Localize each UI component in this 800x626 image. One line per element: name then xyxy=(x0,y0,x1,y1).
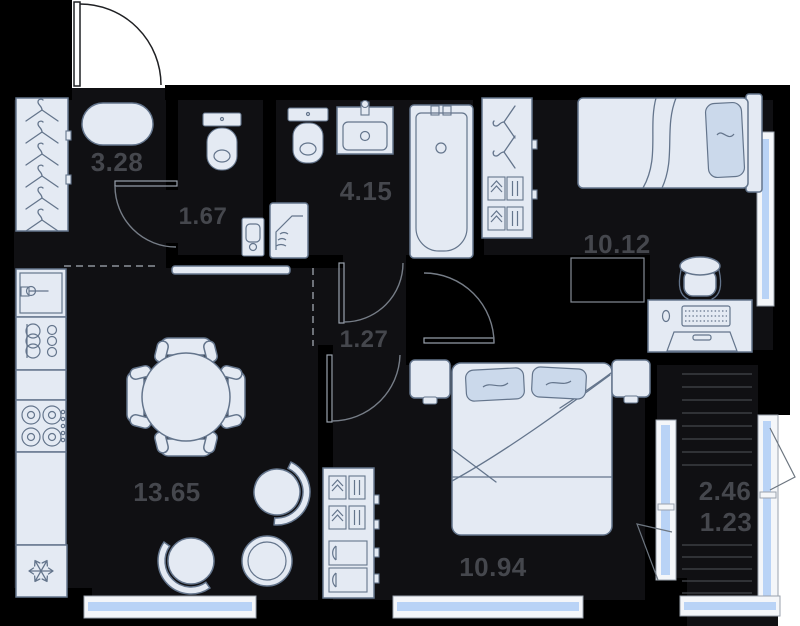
room-label-hallway: 3.28 xyxy=(91,147,144,177)
stove-icon xyxy=(16,400,66,452)
balcony-glazing-inner xyxy=(656,420,676,580)
shelf-unit xyxy=(323,468,379,598)
room-label-wc: 1.67 xyxy=(179,203,228,230)
kitchen-row xyxy=(16,269,67,597)
bath-toilet-icon xyxy=(288,108,328,163)
window-bedroom-master xyxy=(393,596,583,618)
room-label-bathroom: 4.15 xyxy=(340,176,393,206)
balcony-glazing-bottom xyxy=(680,596,780,616)
double-bed-icon xyxy=(452,363,612,535)
window-living xyxy=(84,596,256,618)
room-label-corridor: 1.27 xyxy=(340,326,389,353)
counter-bar xyxy=(172,266,290,274)
room-label-bedroom-small: 10.12 xyxy=(583,229,651,259)
floor-plan: 3.28 1.67 4.15 10.12 1.27 13.65 10.94 2.… xyxy=(0,0,800,626)
room-label-bedroom-master: 10.94 xyxy=(459,552,527,582)
entrance-door xyxy=(74,2,161,86)
kitchen-counter xyxy=(16,370,66,400)
nightstand-left xyxy=(410,360,450,404)
outside-area xyxy=(778,415,800,626)
hall-wardrobe xyxy=(16,98,71,231)
room-label-balcony-counted: 1.23 xyxy=(700,507,753,537)
wc-toilet-icon xyxy=(203,113,241,170)
floor-plan-canvas: 3.28 1.67 4.15 10.12 1.27 13.65 10.94 2.… xyxy=(0,0,800,626)
nightstand-right xyxy=(612,360,650,403)
bath-sink-icon xyxy=(337,101,393,155)
washing-machine-icon xyxy=(270,203,308,258)
single-bed-icon xyxy=(578,94,762,192)
wc-sink-icon xyxy=(242,218,264,256)
side-table-icon xyxy=(242,536,292,586)
entry-rug xyxy=(82,103,153,145)
kitchen-sink-icon xyxy=(16,269,66,317)
dining-table-icon xyxy=(142,353,230,441)
desk-icon xyxy=(648,300,752,352)
kitchen-dryer-icon xyxy=(16,317,66,370)
fridge-icon xyxy=(16,545,67,597)
bathtub-icon xyxy=(410,105,473,258)
room-label-balcony-full: 2.46 xyxy=(699,476,752,506)
desk-chair-icon xyxy=(679,257,720,299)
balcony-glazing-outer xyxy=(758,415,778,602)
kitchen-counter-2 xyxy=(16,452,66,545)
room-label-living: 13.65 xyxy=(133,477,201,507)
closet-bedroom-small xyxy=(482,98,537,238)
